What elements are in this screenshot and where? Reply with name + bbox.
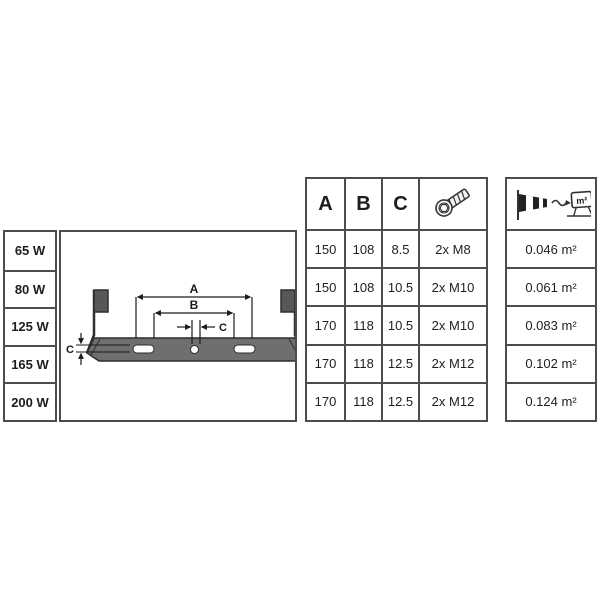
value-c: 10.5 (381, 267, 418, 305)
value-a: 150 (307, 229, 344, 267)
value-b: 108 (344, 267, 381, 305)
right-slot-hole (234, 345, 255, 353)
value-screws: 2x M10 (418, 267, 486, 305)
value-wind-area: 0.124 m² (507, 382, 595, 420)
value-a: 150 (307, 267, 344, 305)
dimension-table: A B C 150 108 8.5 2x M8 150 108 10.5 2x … (305, 177, 488, 422)
windsock-floodlight-area-icon: m² (511, 184, 591, 224)
bracket-dimension-drawing: A B C C (59, 230, 297, 422)
value-c: 12.5 (381, 344, 418, 382)
dimension-c-left-label: C (66, 344, 74, 356)
column-header-wind-area: m² (507, 179, 595, 229)
center-hole (191, 346, 199, 354)
wattage-label: 165 W (5, 345, 55, 383)
wattage-label: 200 W (5, 382, 55, 420)
wattage-label: 80 W (5, 270, 55, 308)
wind-icon-m2-label: m² (576, 195, 588, 206)
column-header-screws (418, 179, 486, 229)
bracket-base-plate (87, 338, 295, 361)
value-b: 108 (344, 229, 381, 267)
value-c: 8.5 (381, 229, 418, 267)
value-b: 118 (344, 344, 381, 382)
dimension-c-center-label: C (219, 322, 227, 334)
wattage-label: 125 W (5, 307, 55, 345)
value-a: 170 (307, 382, 344, 420)
value-wind-area: 0.046 m² (507, 229, 595, 267)
value-c: 10.5 (381, 305, 418, 343)
column-header-a: A (307, 179, 344, 229)
dimension-a-label: A (190, 282, 199, 296)
value-screws: 2x M12 (418, 344, 486, 382)
left-slot-hole (133, 345, 154, 353)
value-wind-area: 0.102 m² (507, 344, 595, 382)
dimension-b-label: B (190, 298, 199, 312)
value-screws: 2x M8 (418, 229, 486, 267)
wind-area-table: m² 0.046 m² 0.061 m² 0.083 m² 0.102 m² 0… (505, 177, 597, 422)
column-header-c: C (381, 179, 418, 229)
value-screws: 2x M10 (418, 305, 486, 343)
value-screws: 2x M12 (418, 382, 486, 420)
value-a: 170 (307, 305, 344, 343)
mounting-bracket-diagram: A B C C (61, 232, 295, 420)
value-wind-area: 0.083 m² (507, 305, 595, 343)
value-b: 118 (344, 382, 381, 420)
value-a: 170 (307, 344, 344, 382)
value-b: 118 (344, 305, 381, 343)
value-c: 12.5 (381, 382, 418, 420)
wattage-column: 65 W 80 W 125 W 165 W 200 W (3, 230, 57, 422)
value-wind-area: 0.061 m² (507, 267, 595, 305)
hex-socket-screw-icon (430, 186, 476, 222)
wattage-label: 65 W (5, 232, 55, 270)
column-header-b: B (344, 179, 381, 229)
